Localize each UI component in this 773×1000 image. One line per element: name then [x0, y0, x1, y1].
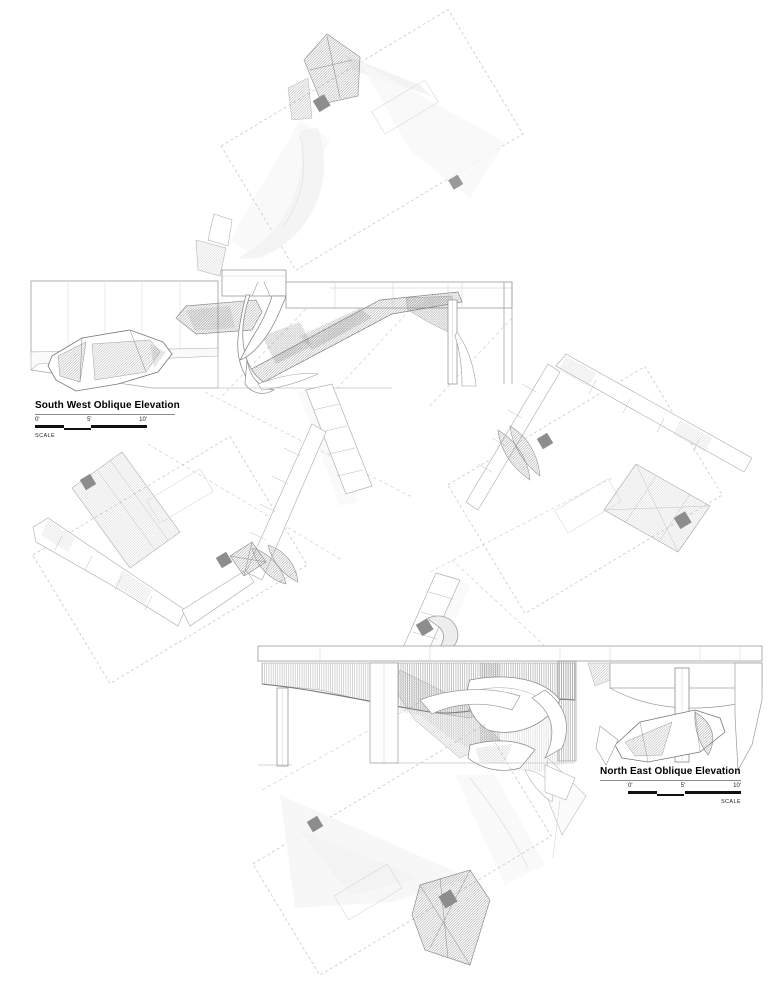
sw-elevation-title: South West Oblique Elevation [35, 400, 175, 411]
sw-scale-bar: 0' 5' 10' SCALE [35, 417, 147, 439]
connector-ribbon-3 [455, 770, 553, 885]
ne-elevation-titleblock: North East Oblique Elevation 0' 5' 10' S… [600, 766, 741, 805]
sw-title-rule [35, 414, 175, 415]
ne-title-rule [600, 780, 741, 781]
ne-tick-5: 5' [681, 783, 685, 790]
ne-scale-ticks: 0' 5' 10' [628, 783, 741, 790]
ne-elevation-title: North East Oblique Elevation [600, 766, 741, 777]
ne-scale-bar: 0' 5' 10' SCALE [628, 783, 741, 805]
sw-scale-segments [35, 425, 147, 431]
plan-view-middle-right [448, 354, 752, 614]
plan-view-top [196, 10, 523, 276]
column-marker [537, 433, 553, 449]
ne-scale-label: SCALE [628, 799, 741, 805]
sw-tick-0: 0' [35, 417, 39, 424]
ne-scale-segments [628, 791, 741, 797]
sw-elevation-drawing [31, 270, 512, 393]
sw-scale-label: SCALE [35, 433, 147, 439]
plan-view-middle-left [33, 424, 326, 684]
architectural-sheet-svg [0, 0, 773, 1000]
drawing-sheet: { "titles": { "sw": { "title": "South We… [0, 0, 773, 1000]
sw-tick-5: 5' [87, 417, 91, 424]
sw-scale-ticks: 0' 5' 10' [35, 417, 147, 424]
column-marker [216, 552, 232, 568]
sw-elevation-titleblock: South West Oblique Elevation 0' 5' 10' S… [35, 400, 175, 439]
ne-tick-10: 10' [733, 783, 741, 790]
sw-tick-10: 10' [139, 417, 147, 424]
ne-tick-0: 0' [628, 783, 632, 790]
drawing-canvas [0, 0, 773, 1000]
